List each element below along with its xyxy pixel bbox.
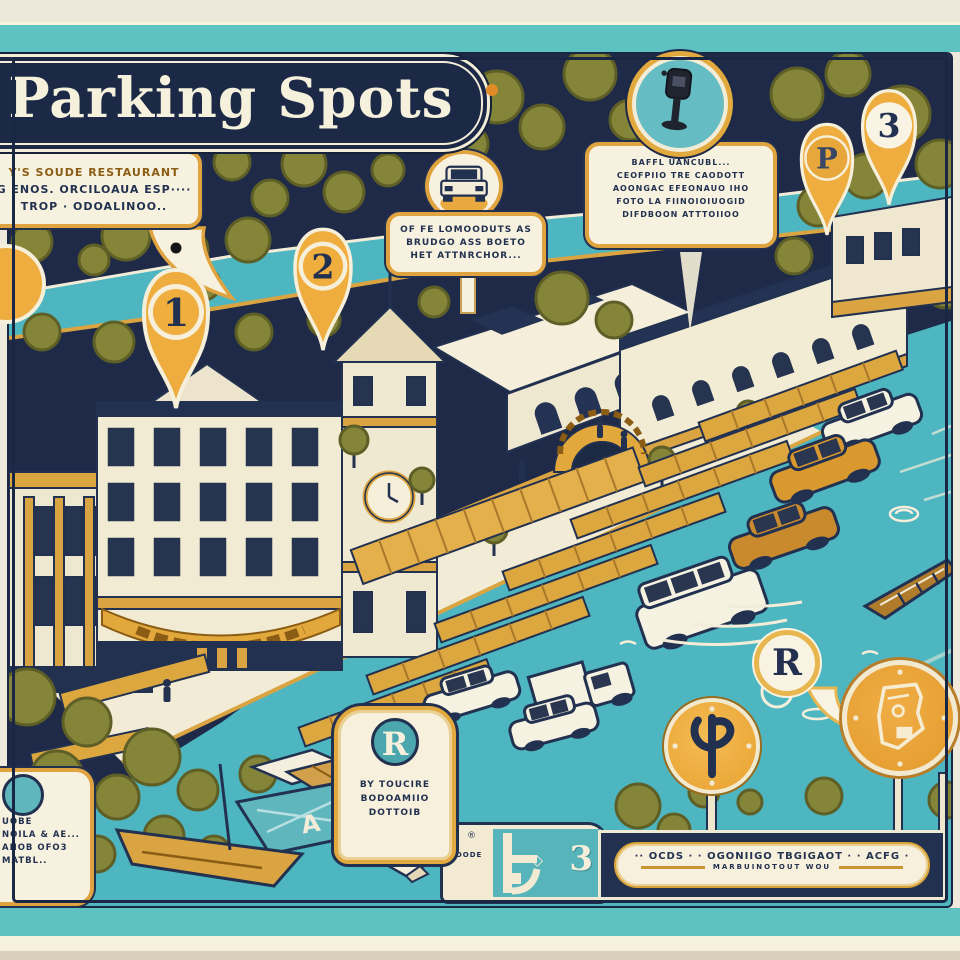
- callout-car-stem: [460, 274, 476, 314]
- pin-2-number: 2: [311, 247, 334, 286]
- map-pin-1-icon: 1: [136, 252, 216, 422]
- bottom-beige-band: [0, 951, 960, 960]
- map-pin-3: 3: [856, 64, 922, 232]
- callout-car: OF FE LOMOODUTS AS BRUDGO ASS BOETO HET …: [386, 212, 546, 276]
- top-cream-band: [0, 0, 960, 25]
- parking-meter-icon: [636, 60, 716, 140]
- map-pin-2-icon: 2: [288, 222, 358, 354]
- title-banner: Parking Spots: [0, 54, 490, 152]
- car-icon: [429, 154, 499, 218]
- r-sign-line3: DOTTOIB: [338, 806, 452, 820]
- r-bubble-letter: R: [772, 642, 802, 684]
- map-round-sign: [842, 660, 958, 776]
- callout-restaurant-line3: TROP · ODOALINOO..: [0, 198, 198, 215]
- r-bubble: R: [754, 630, 820, 696]
- callout-car-line3: HET ATTNRCHOR...: [390, 250, 542, 263]
- map-sign-pole-left: [893, 772, 903, 834]
- title-accent-dot: [486, 84, 498, 96]
- banner-line1: ·· OCDS · · OGONIIGO TBGIGAOT · · ACFG ·: [616, 851, 928, 862]
- callout-meter-line3: AOONGAC EFEONAUO IHO: [589, 182, 773, 195]
- callout-car-line2: BRUDGO ASS BOETO: [390, 237, 542, 250]
- minimap-number: 3: [569, 839, 593, 879]
- pin-1-number: 1: [163, 290, 189, 335]
- callout-restaurant-line2: G ENOS. ORCILOAUA ESP····: [0, 181, 198, 198]
- banner-rule-right: [839, 866, 903, 869]
- bottom-teal-band: [0, 908, 960, 936]
- callout-bl-line4: MATBL..: [2, 855, 90, 868]
- map-pin-p-icon: P: [795, 118, 859, 238]
- map-document-icon: [847, 665, 953, 771]
- callout-restaurant: Y'S SOUDE RESTAURANT G ENOS. ORCILOAUA E…: [0, 150, 202, 228]
- map-sign-pole-right: [938, 772, 948, 834]
- callout-meter-line5: DIFDBOON ATTTOIIOO: [589, 208, 773, 221]
- map-pin-2: 2: [288, 222, 358, 358]
- callout-meter-line1: BAFFL UANCUBL...: [589, 156, 773, 169]
- bottom-banner-pill: ·· OCDS · · OGONIIGO TBGIGAOT · · ACFG ·…: [614, 842, 930, 888]
- minimap-diamond-icon: ◇: [531, 851, 543, 869]
- callout-meter: BAFFL UANCUBL... CEOFPIIO TRE CAODOTT AO…: [585, 142, 777, 248]
- pin-3-number: 3: [878, 106, 901, 145]
- callout-car-line1: OF FE LOMOODUTS AS: [390, 224, 542, 237]
- banner-rule-left: [641, 866, 705, 869]
- reserved-parking-sign: R BY TOUCIRE BODOAMIIO DOTTOIB: [334, 706, 456, 864]
- r-sign-line1: BY TOUCIRE: [338, 778, 452, 792]
- top-teal-band: [0, 25, 960, 52]
- callout-bl-line2: NOILA & AE...: [2, 829, 90, 842]
- map-pin-1: 1: [136, 252, 216, 426]
- p-glyph-icon: [668, 702, 756, 790]
- callout-bl-line1: UOBE: [2, 816, 90, 829]
- registered-mark: ®: [467, 831, 476, 841]
- p-round-sign: [664, 698, 760, 794]
- page-title: Parking Spots: [0, 65, 471, 130]
- callout-restaurant-line1: Y'S SOUDE RESTAURANT: [0, 164, 198, 181]
- map-pin-3-icon: 3: [856, 64, 922, 228]
- callout-bl-line3: AHOB OFO3: [2, 842, 90, 855]
- r-sign-letter: R: [382, 725, 409, 763]
- pin-p-letter: P: [816, 141, 838, 175]
- callout-meter-line4: FOTO LA FIINOIOIUOGID: [589, 195, 773, 208]
- map-pin-p: P: [795, 118, 859, 242]
- r-sign-line2: BODOAMIIO: [338, 792, 452, 806]
- callout-meter-line2: CEOFPIIO TRE CAODOTT: [589, 169, 773, 182]
- bottom-cream-band: [0, 936, 960, 951]
- minimap-panel: ® ODODE ◇ 3: [440, 822, 608, 904]
- banner-line2: MARBUINOTOUT WOU: [713, 863, 831, 871]
- r-circle: R: [371, 718, 419, 766]
- parking-meter-badge: [632, 56, 728, 152]
- bottom-banner: ·· OCDS · · OGONIIGO TBGIGAOT · · ACFG ·…: [598, 830, 946, 900]
- callout-bl-circle-icon: [2, 774, 44, 816]
